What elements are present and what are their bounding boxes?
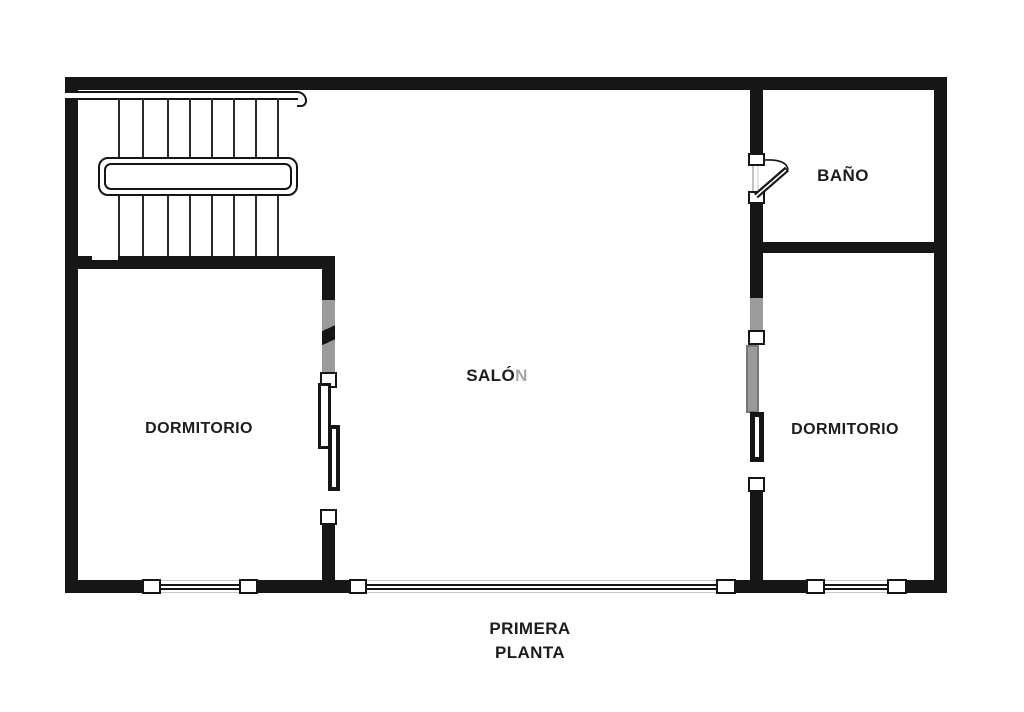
wall-bathroom-bottom: [750, 242, 947, 253]
wall-bottom-segment: [907, 580, 947, 593]
window-jamb: [142, 579, 161, 594]
bathroom-label-text: BAÑO: [817, 166, 869, 185]
bedroom-right-label-text: DORMITORIO: [791, 421, 899, 438]
sliding-door-panel: [746, 345, 759, 413]
stair-riser: [167, 98, 169, 158]
watermark-smudge: [322, 300, 335, 372]
stair-step-edges: [117, 85, 307, 89]
wall-bathroom-divider-upper: [750, 90, 763, 153]
wall-outer-left: [65, 77, 78, 593]
door-swing-overlay: [0, 0, 1024, 712]
stair-riser: [118, 196, 120, 256]
bedroom-left-label-text: DORMITORIO: [145, 420, 253, 437]
floor-caption: PRIMERA PLANTA: [489, 617, 570, 665]
stair-riser: [189, 98, 191, 158]
stair-riser: [255, 196, 257, 256]
wall-bedroom-left-divider-lower: [322, 525, 335, 585]
wall-notch: [92, 256, 118, 260]
door-swing-arc-icon: [765, 160, 788, 170]
stair-riser: [211, 196, 213, 256]
wall-bottom-segment: [736, 580, 806, 593]
window-jamb: [887, 579, 907, 594]
window-jamb: [806, 579, 825, 594]
window-bedroom-right: [825, 580, 887, 593]
window-jamb: [239, 579, 258, 594]
stair-riser: [189, 196, 191, 256]
door-jamb: [320, 509, 337, 525]
handrail-hook-icon: [297, 92, 306, 106]
window-living-room: [367, 580, 716, 593]
stair-handrail: [65, 91, 298, 100]
room-label-bathroom: BAÑO: [817, 166, 869, 186]
sliding-door-panel: [328, 425, 340, 491]
window-bedroom-left: [161, 580, 239, 593]
stair-riser: [211, 98, 213, 158]
room-label-living: SALÓN: [466, 366, 528, 386]
floor-plan: BAÑO SALÓN DORMITORIO DORMITORIO PRIMERA…: [0, 0, 1024, 712]
stair-riser: [233, 196, 235, 256]
stair-riser: [255, 98, 257, 158]
window-jamb: [716, 579, 736, 594]
caption-line-1: PRIMERA: [489, 617, 570, 641]
living-label-dark: SALÓ: [466, 366, 515, 385]
wall-divider-lower: [750, 492, 763, 584]
wall-bedroom-left-divider-upper: [322, 256, 335, 300]
wall-bottom-segment: [258, 580, 349, 593]
door-jamb: [748, 477, 765, 492]
stair-riser: [118, 98, 120, 158]
stair-riser: [277, 196, 279, 256]
wall-outer-right: [934, 77, 947, 593]
door-jamb: [748, 330, 765, 345]
living-label-faded: N: [515, 366, 528, 385]
stair-riser: [142, 98, 144, 158]
wall-bottom-segment: [65, 580, 142, 593]
room-label-bedroom-right: DORMITORIO: [791, 421, 899, 439]
sliding-door-panel: [750, 412, 764, 462]
stair-landing-rail-inner: [104, 163, 292, 190]
watermark-smudge: [750, 298, 763, 330]
room-label-bedroom-left: DORMITORIO: [145, 420, 253, 438]
window-jamb: [349, 579, 367, 594]
stair-landing-rail: [98, 157, 298, 196]
stair-riser: [142, 196, 144, 256]
stair-riser: [233, 98, 235, 158]
stair-riser: [277, 98, 279, 158]
door-jamb: [748, 191, 765, 204]
door-jamb: [748, 153, 765, 166]
stair-riser: [167, 196, 169, 256]
caption-line-2: PLANTA: [489, 641, 570, 665]
